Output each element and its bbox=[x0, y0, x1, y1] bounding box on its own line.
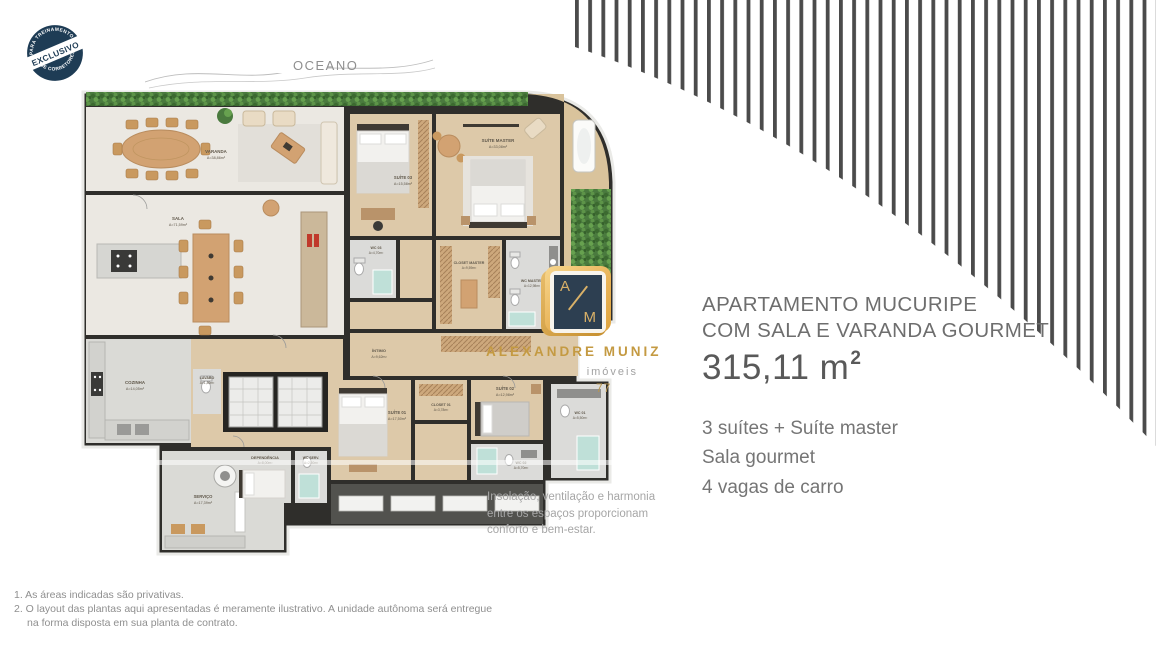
svg-text:A=38,86m²: A=38,86m² bbox=[207, 156, 226, 160]
ocean-label: OCEANO bbox=[293, 58, 358, 73]
exclusivo-badge: PARA TREINAMENTO DE CORRETORES EXCLUSIVO bbox=[24, 22, 86, 84]
svg-text:ÍNTIMO: ÍNTIMO bbox=[372, 348, 386, 353]
svg-text:VARANDA: VARANDA bbox=[205, 149, 227, 154]
area-value: 315,11 m bbox=[702, 348, 849, 387]
label-closet-01: CLOSET 01 A=3,78m² bbox=[431, 403, 451, 412]
hedge-top bbox=[86, 92, 528, 106]
svg-text:SERVIÇO: SERVIÇO bbox=[194, 494, 214, 499]
svg-text:A=9,62m²: A=9,62m² bbox=[371, 355, 387, 359]
svg-text:A=71,59m²: A=71,59m² bbox=[169, 223, 188, 227]
area-exponent: 2 bbox=[850, 348, 861, 369]
listing-area: 315,11 m2 bbox=[702, 348, 1049, 388]
svg-text:WC 03: WC 03 bbox=[371, 246, 382, 250]
dependencia-furniture bbox=[239, 470, 285, 498]
listing-features: 3 suítes + Suíte master Sala gourmet 4 v… bbox=[702, 414, 1049, 502]
svg-text:SUÍTE 02: SUÍTE 02 bbox=[496, 386, 515, 391]
svg-text:A=14,05m²: A=14,05m² bbox=[126, 387, 145, 391]
feature-vagas: 4 vagas de carro bbox=[702, 473, 1049, 502]
brand-number: 77 bbox=[596, 381, 611, 395]
svg-text:LAVABO: LAVABO bbox=[200, 376, 215, 380]
svg-text:A=17,39m²: A=17,39m² bbox=[194, 501, 213, 505]
svg-text:A=1,80m²: A=1,80m² bbox=[200, 381, 215, 385]
svg-text:A=33,08m²: A=33,08m² bbox=[489, 145, 508, 149]
flyer-page: { "badge": { "top_arc": "PARA TREINAMENT… bbox=[0, 0, 1156, 650]
logo-letter-m: M bbox=[584, 309, 597, 326]
svg-text:A=4,70m²: A=4,70m² bbox=[369, 251, 384, 255]
svg-text:SUÍTE 03: SUÍTE 03 bbox=[394, 175, 413, 180]
brand-name: ALEXANDRE MUNIZ bbox=[486, 344, 650, 359]
svg-text:A=5,50m²: A=5,50m² bbox=[573, 416, 588, 420]
footnotes: 1. As áreas indicadas são privativas. 2.… bbox=[14, 589, 492, 631]
svg-text:A=15,58m²: A=15,58m² bbox=[394, 182, 413, 186]
insolation-caption: Insolação, ventilação e harmonia entre o… bbox=[487, 489, 655, 539]
svg-text:SUÍTE 01: SUÍTE 01 bbox=[388, 410, 407, 415]
feature-sala-gourmet: Sala gourmet bbox=[702, 443, 1049, 472]
svg-text:A=12,98m²: A=12,98m² bbox=[496, 393, 515, 397]
brand-subtitle: imóveis bbox=[486, 366, 638, 378]
caption-line-3: conforto e bem-estar. bbox=[487, 522, 655, 539]
hall-suites bbox=[400, 240, 432, 298]
closet-01-cabinet bbox=[419, 384, 463, 396]
caption-line-1: Insolação, ventilação e harmonia bbox=[487, 489, 655, 506]
label-lavabo: LAVABO A=1,80m² bbox=[200, 376, 215, 385]
svg-text:SUÍTE MASTER: SUÍTE MASTER bbox=[482, 138, 516, 143]
feature-suites: 3 suítes + Suíte master bbox=[702, 414, 1049, 443]
svg-text:COZINHA: COZINHA bbox=[125, 380, 146, 385]
listing-title-line-2: COM SALA E VARANDA GOURMET bbox=[702, 318, 1049, 344]
listing-title-line-1: APARTAMENTO MUCURIPE bbox=[702, 292, 1049, 318]
brand-logo: A M bbox=[545, 266, 611, 338]
svg-text:A=5,70m²: A=5,70m² bbox=[514, 466, 529, 470]
svg-text:A=12,98m²: A=12,98m² bbox=[524, 284, 541, 288]
listing-info: APARTAMENTO MUCURIPE COM SALA E VARANDA … bbox=[702, 292, 1049, 502]
footnote-2: 2. O layout das plantas aqui apresentada… bbox=[14, 603, 492, 617]
hall-intimo-a bbox=[350, 302, 432, 329]
svg-text:CLOSET 01: CLOSET 01 bbox=[431, 403, 451, 407]
svg-text:SALA: SALA bbox=[172, 216, 185, 221]
footnote-2-continued: na forma disposta em sua planta de contr… bbox=[14, 617, 492, 631]
logo-letter-a: A bbox=[560, 278, 570, 295]
bathtub-basin bbox=[577, 128, 591, 164]
svg-text:CLOSET MASTER: CLOSET MASTER bbox=[454, 261, 485, 265]
svg-text:A=3,78m²: A=3,78m² bbox=[434, 408, 449, 412]
caption-line-2: entre os espaços proporcionam bbox=[487, 506, 655, 523]
footnote-1: 1. As áreas indicadas são privativas. bbox=[14, 589, 492, 603]
svg-text:A=9,59m²: A=9,59m² bbox=[462, 266, 477, 270]
svg-text:A=17,50m²: A=17,50m² bbox=[388, 417, 407, 421]
svg-text:WC 01: WC 01 bbox=[575, 411, 586, 415]
hall-suite-01 bbox=[415, 424, 467, 480]
listing-title: APARTAMENTO MUCURIPE COM SALA E VARANDA … bbox=[702, 292, 1049, 344]
